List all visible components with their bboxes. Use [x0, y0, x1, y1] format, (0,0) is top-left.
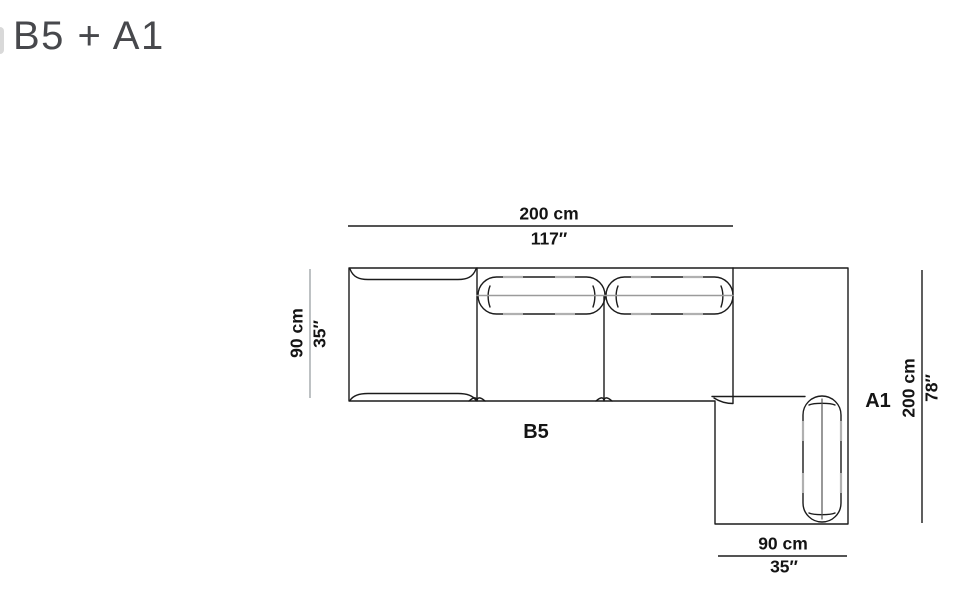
dim-bottom-inch: 35″: [770, 558, 798, 576]
dim-top-cm: 200 cm: [519, 205, 578, 223]
dim-right-inch: 78″: [923, 374, 941, 402]
pillow-end-arc: [488, 286, 490, 307]
left-cushion-bottom-seam: [350, 394, 476, 401]
sofa-top-view-drawing: [0, 0, 960, 590]
chaise-corner-curl: [714, 398, 733, 404]
dim-top-inch: 117″: [531, 230, 568, 248]
dim-right-cm: 200 cm: [900, 358, 918, 417]
dim-bottom-cm: 90 cm: [758, 535, 808, 553]
left-cushion-top-seam: [350, 269, 476, 280]
spec-sheet: B5 + A1: [0, 0, 960, 590]
dim-left-inch: 35″: [311, 320, 329, 348]
module-label-b5: B5: [523, 422, 549, 442]
pillow-end-arc: [593, 286, 595, 307]
module-label-a1: A1: [865, 391, 891, 411]
pillow-end-arc: [721, 286, 723, 307]
pillow-end-arc: [616, 286, 618, 307]
dim-left-cm: 90 cm: [288, 308, 306, 358]
